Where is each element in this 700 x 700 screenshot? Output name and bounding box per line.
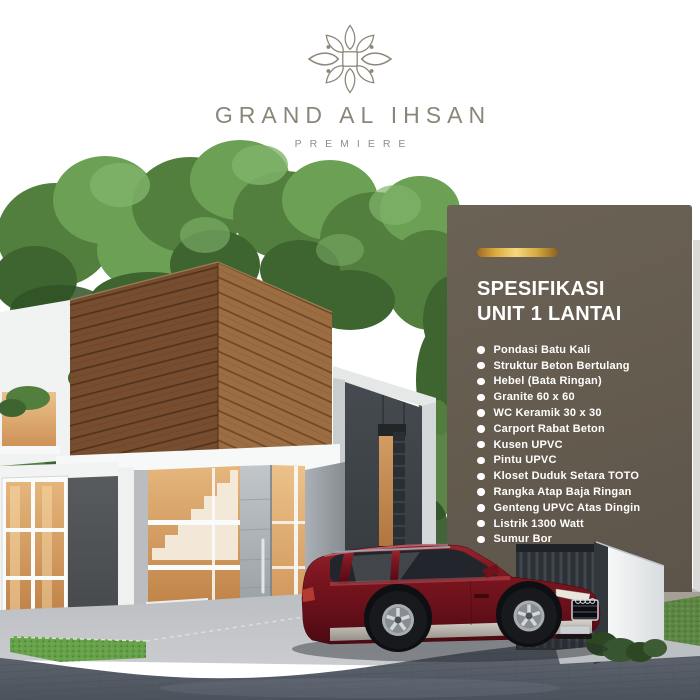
- spec-list: Pondasi Batu Kali Struktur Beton Bertula…: [477, 342, 674, 547]
- bullet-icon: [477, 425, 485, 433]
- list-item: Rangka Atap Baja Ringan: [477, 484, 674, 500]
- list-item: Sumur Bor: [477, 532, 674, 548]
- spec-heading: SPESIFIKASI UNIT 1 LANTAI: [477, 277, 674, 327]
- brand-title: GRAND AL IHSAN: [0, 102, 700, 129]
- bullet-icon: [477, 520, 485, 528]
- list-item: Kloset Duduk Setara TOTO: [477, 468, 674, 484]
- spec-panel: SPESIFIKASI UNIT 1 LANTAI Pondasi Batu K…: [447, 205, 692, 603]
- front-door: [240, 465, 272, 612]
- brand-header: GRAND AL IHSAN PREMIERE: [0, 0, 700, 150]
- bullet-icon: [477, 441, 485, 449]
- list-item: WC Keramik 30 x 30: [477, 405, 674, 421]
- bullet-icon: [477, 488, 485, 496]
- bullet-icon: [477, 473, 485, 481]
- flyer-canvas: SPESIFIKASI UNIT 1 LANTAI Pondasi Batu K…: [0, 0, 700, 700]
- bullet-icon: [477, 536, 485, 544]
- list-item: Pondasi Batu Kali: [477, 342, 674, 358]
- list-item: Carport Rabat Beton: [477, 421, 674, 437]
- spec-heading-line1: SPESIFIKASI: [477, 277, 674, 302]
- bullet-icon: [477, 362, 485, 370]
- brand-subtitle: PREMIERE: [0, 138, 700, 150]
- tower-light-slot: [379, 436, 393, 546]
- list-item: Hebel (Bata Ringan): [477, 374, 674, 390]
- brand-logo-ornament-icon: [302, 18, 398, 100]
- side-wall-sliver: [693, 240, 700, 608]
- list-item: Genteng UPVC Atas Dingin: [477, 500, 674, 516]
- bullet-icon: [477, 378, 485, 386]
- list-item: Struktur Beton Bertulang: [477, 358, 674, 374]
- spec-heading-line2: UNIT 1 LANTAI: [477, 302, 674, 327]
- bullet-icon: [477, 504, 485, 512]
- bullet-icon: [477, 409, 485, 417]
- bullet-icon: [477, 346, 485, 354]
- list-item: Kusen UPVC: [477, 437, 674, 453]
- list-item: Pintu UPVC: [477, 453, 674, 469]
- gold-divider: [477, 248, 558, 257]
- bullet-icon: [477, 457, 485, 465]
- bullet-icon: [477, 394, 485, 402]
- list-item: Listrik 1300 Watt: [477, 516, 674, 532]
- entry-glass: [148, 466, 240, 618]
- list-item: Granite 60 x 60: [477, 389, 674, 405]
